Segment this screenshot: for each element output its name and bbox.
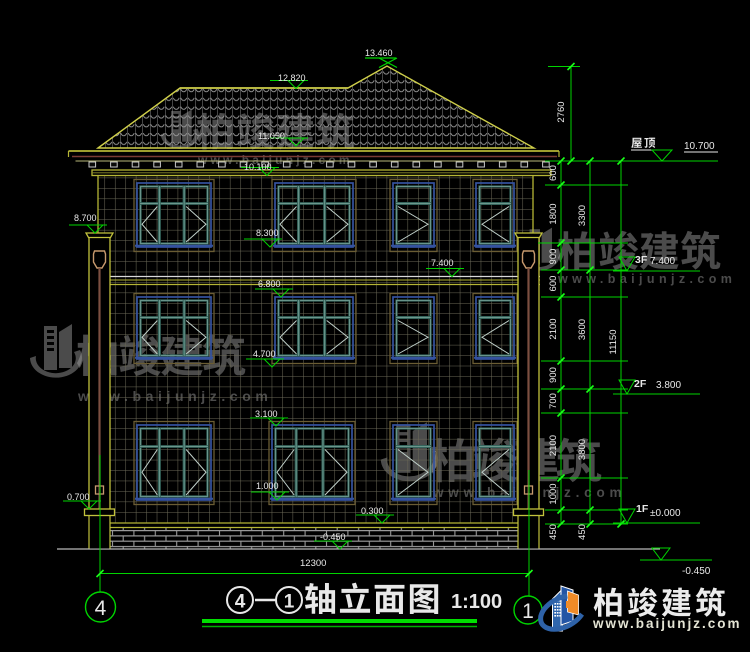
svg-text:600: 600 [548,165,559,181]
svg-text:12.820: 12.820 [278,73,306,83]
svg-text:±0.000: ±0.000 [650,508,681,519]
svg-text:2100: 2100 [548,435,559,456]
svg-text:4.700: 4.700 [253,349,276,359]
svg-text:600: 600 [548,276,559,292]
svg-text:www.baijunjz.com: www.baijunjz.com [592,616,742,631]
svg-text:450: 450 [577,524,588,540]
svg-text:1F: 1F [636,503,649,515]
svg-text:6.800: 6.800 [258,279,281,289]
svg-text:1000: 1000 [548,483,559,504]
svg-text:4: 4 [235,592,246,613]
svg-text:2760: 2760 [556,101,567,122]
svg-text:3.800: 3.800 [656,380,681,391]
svg-text:13.460: 13.460 [365,48,393,58]
svg-text:1800: 1800 [548,203,559,224]
svg-text:1:100: 1:100 [451,591,502,613]
svg-text:7.400: 7.400 [431,258,454,268]
svg-text:2100: 2100 [548,318,559,339]
svg-text:-0.450: -0.450 [682,566,711,577]
svg-text:11150: 11150 [608,329,619,354]
svg-text:0.300: 0.300 [361,506,384,516]
svg-text:3300: 3300 [577,205,588,226]
svg-text:900: 900 [548,249,559,265]
svg-text:-0.450: -0.450 [320,532,346,542]
svg-text:900: 900 [548,367,559,383]
svg-text:11.050: 11.050 [258,131,285,141]
svg-text:10.700: 10.700 [684,141,715,152]
svg-text:700: 700 [548,393,559,409]
svg-text:0.700: 0.700 [67,492,90,502]
svg-text:7.400: 7.400 [650,256,675,267]
svg-text:1: 1 [284,592,295,613]
svg-text:1: 1 [522,600,534,623]
svg-text:10.100: 10.100 [244,162,272,172]
svg-text:3600: 3600 [577,319,588,340]
svg-text:4: 4 [95,597,107,620]
svg-text:3800: 3800 [577,439,588,460]
svg-text:8.300: 8.300 [256,228,279,238]
svg-text:1.000: 1.000 [256,481,279,491]
svg-text:www.baijunjz.com: www.baijunjz.com [557,272,736,286]
svg-text:450: 450 [548,524,559,540]
svg-text:8.700: 8.700 [74,213,97,223]
svg-text:12300: 12300 [300,558,326,569]
svg-text:3.100: 3.100 [255,409,278,419]
svg-text:3F: 3F [635,254,648,266]
svg-text:2F: 2F [634,378,647,390]
